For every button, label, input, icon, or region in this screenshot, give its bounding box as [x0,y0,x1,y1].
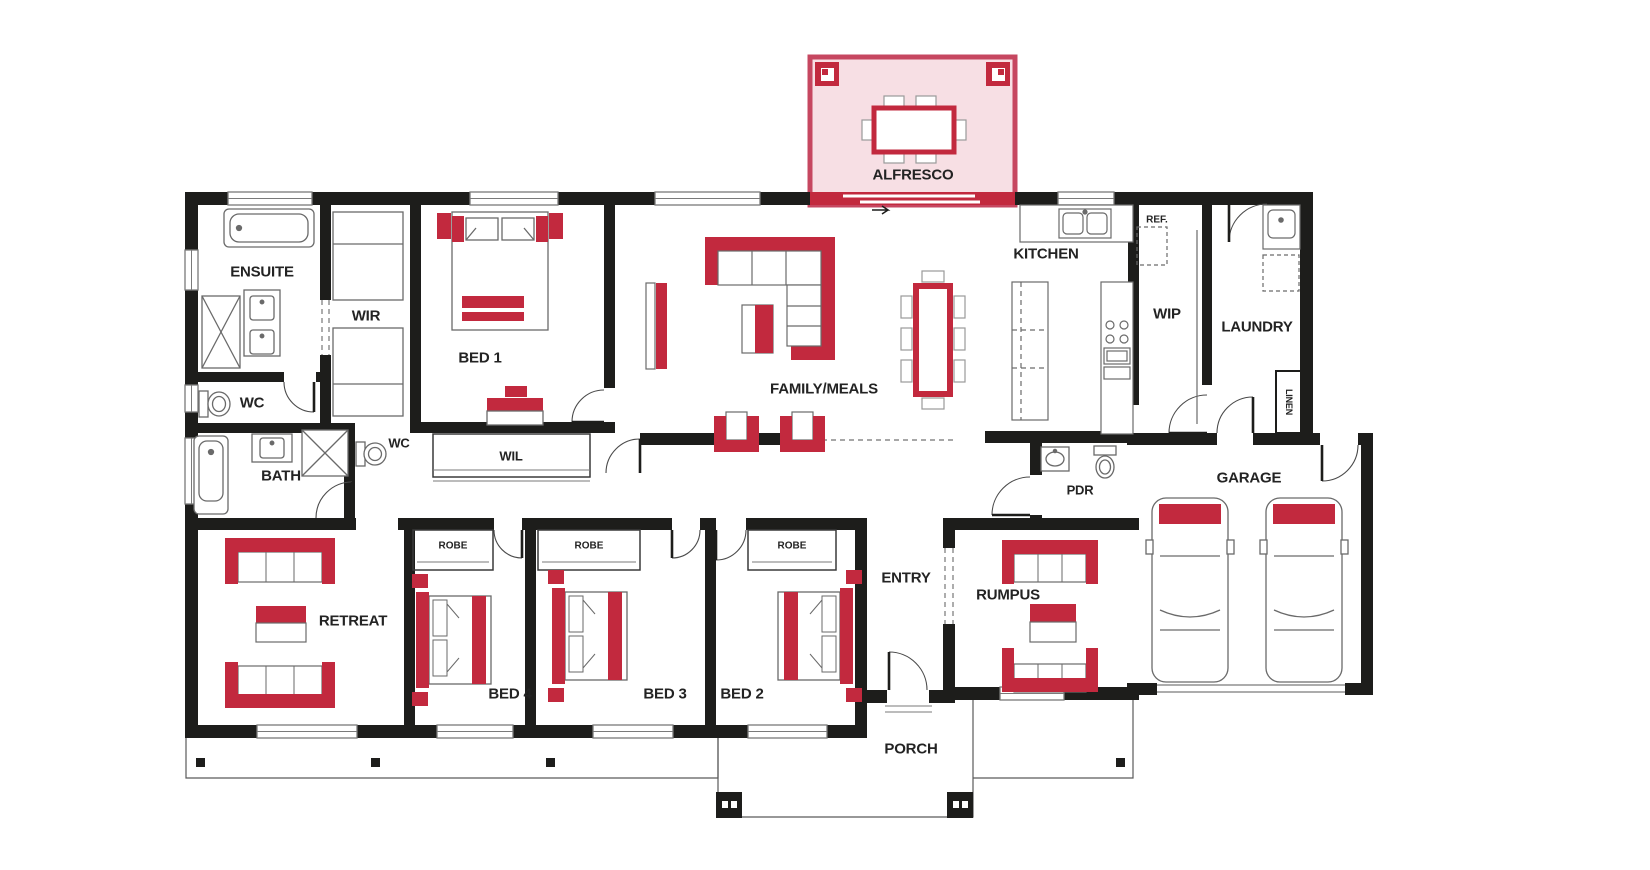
bedroom-furniture [412,530,862,706]
toilet-icon [1094,446,1116,478]
label-laundry: LAUNDRY [1221,319,1292,336]
shower-icon [202,296,240,368]
sofa [225,538,335,584]
kitchen-fixtures [1012,205,1133,434]
label-retreat: RETREAT [319,613,387,630]
bathtub-icon [224,209,314,247]
basin-icon [1041,447,1069,471]
trough-icon [1263,205,1300,249]
armchair [714,412,759,452]
label-garage: GARAGE [1217,470,1282,487]
label-bed1: BED 1 [458,350,501,367]
family-furniture [646,237,965,452]
appliance-space [1263,255,1299,291]
label-ensuite: ENSUITE [230,264,294,281]
toilet-icon [199,391,230,417]
pdr-fixtures [1041,446,1116,478]
coffee-table [256,606,306,642]
label-pdr: PDR [1067,483,1094,498]
label-alfresco: ALFRESCO [873,167,954,184]
bed-double [778,570,862,702]
coffee-table [1030,604,1076,642]
label-family-meals: FAMILY/MEALS [770,381,878,398]
eaves-and-porch-slab [186,698,1133,818]
sink-icon [1059,209,1111,238]
armchair [780,412,825,452]
tv-unit [646,283,667,369]
label-porch: PORCH [884,741,937,758]
bed-double [548,570,627,702]
rumpus-furniture [1002,540,1098,692]
label-ref: REF. [1146,215,1168,226]
shower-icon [302,430,348,476]
label-rumpus: RUMPUS [976,587,1040,604]
coffee-table [742,305,773,353]
bed-double [412,574,491,706]
label-wir: WIR [352,308,381,325]
floor-plan-canvas: ALFRESCO ENSUITE WC WIR BED 1 FAMILY/MEA… [0,0,1650,870]
label-bed2: BED 2 [720,686,763,703]
label-wc-ensuite: WC [240,395,265,412]
alfresco-dining-table [862,96,966,163]
garage-cars [1146,498,1348,692]
eave-post-icon [196,758,1125,767]
wip-fixtures [1137,227,1197,424]
porch-post-icon [716,792,973,818]
label-wip: WIP [1153,306,1181,323]
car-icon [1260,498,1348,682]
label-bed4: BED 4 [488,686,531,703]
label-linen: LINEN [1284,389,1294,415]
label-robe-bed4: ROBE [439,541,468,552]
vanity-icon [252,434,292,462]
sofa [225,662,335,708]
alfresco-post-icon [815,62,839,86]
floor-plan-drawing [0,0,1650,870]
alfresco-post-icon [986,62,1010,86]
label-bath: BATH [261,468,301,485]
bed1-furniture [437,212,563,425]
sofa [1002,540,1098,584]
alfresco-stacker-door [810,192,1015,214]
island-bench [1012,282,1048,420]
toilet-icon [356,442,386,466]
label-robe-bed2: ROBE [778,541,807,552]
sofa [1002,648,1098,692]
label-wc-bath: WC [388,436,409,451]
label-entry: ENTRY [881,570,930,587]
car-icon [1146,498,1234,682]
label-bed3: BED 3 [643,686,686,703]
fridge-space [1137,227,1167,265]
label-kitchen: KITCHEN [1013,246,1078,263]
label-wil: WIL [499,449,522,464]
vanity-icon [244,290,280,356]
cooktop-oven-icon [1101,282,1133,434]
robe-closet [413,530,836,570]
ensuite-fixtures [199,209,314,417]
label-robe-bed3: ROBE [575,541,604,552]
bathtub-icon [194,436,228,514]
dining-table [901,271,965,409]
